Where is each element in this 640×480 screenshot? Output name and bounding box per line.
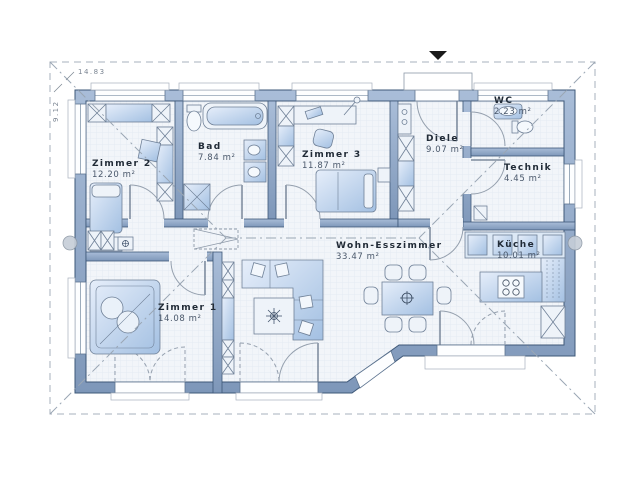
room-label-technik: Technik 4.45 m² [504,163,552,184]
floor-plan: Zimmer 2 12.20 m² Bad 7.84 m² Zimmer 3 1… [0,0,640,480]
room-area: 10.01 m² [497,251,541,261]
room-label-wohnesszimmer: Wohn-Esszimmer 33.47 m² [336,241,442,262]
nightstand [378,168,390,182]
room-name: Technik [504,163,552,173]
room-area: 4.45 m² [504,174,552,184]
room-label-zimmer2: Zimmer 2 12.20 m² [92,159,152,180]
shoe-cabinet [398,104,411,134]
room-name: Bad [198,142,236,152]
toilet [187,111,201,131]
dimension-height: 9.12 [52,100,60,122]
dimension-ticks [54,72,74,92]
room-name: Diele [426,134,464,144]
room-label-zimmer1: Zimmer 1 14.08 m² [158,303,218,324]
room-label-kueche: Küche 10.01 m² [497,240,541,261]
room-area: 33.47 m² [336,252,442,262]
room-name: Zimmer 1 [158,303,218,313]
dimension-width: 14.83 [78,68,106,76]
section-marker-right-icon [568,236,582,250]
entrance-porch [404,73,472,90]
room-label-wc: WC 2.23 m² [494,96,532,117]
room-label-zimmer3: Zimmer 3 11.87 m² [302,150,362,171]
room-area: 7.84 m² [198,153,236,163]
pillow [364,174,373,208]
desk [294,106,356,124]
terrace-step [425,356,525,369]
pillow [117,311,139,333]
cooktop [498,276,524,298]
dining-table [382,282,433,315]
room-label-diele: Diele 9.07 m² [426,134,464,155]
room-area: 2.23 m² [494,107,532,117]
room-name: Wohn-Esszimmer [336,241,442,251]
pillow [92,185,120,197]
room-area: 9.07 m² [426,145,464,155]
room-name: WC [494,96,532,106]
room-area: 11.87 m² [302,161,362,171]
toilet [517,121,533,133]
technik-furniture [474,206,487,220]
section-marker-left-icon [63,236,77,250]
entrance-arrow-icon [429,51,447,60]
room-area: 14.08 m² [158,314,218,324]
room-name: Küche [497,240,541,250]
room-area: 12.20 m² [92,170,152,180]
room-name: Zimmer 3 [302,150,362,160]
room-name: Zimmer 2 [92,159,152,169]
room-label-bad: Bad 7.84 m² [198,142,236,163]
plant [266,308,282,324]
